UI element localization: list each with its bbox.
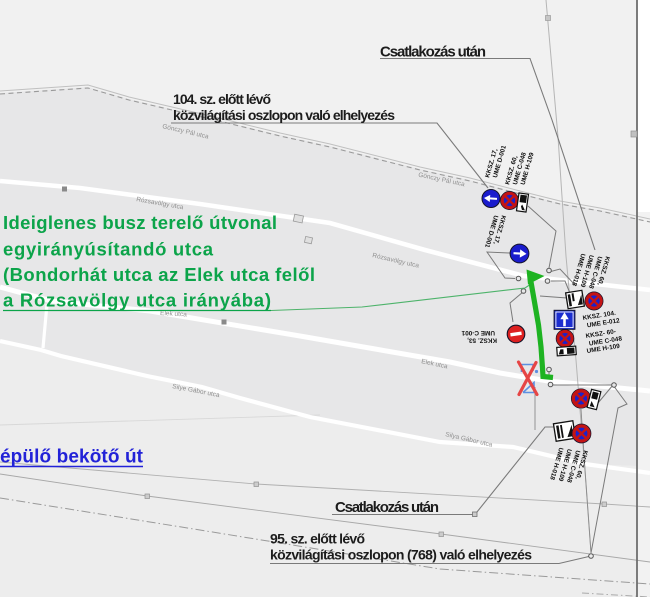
svg-text:épülő bekötő út: épülő bekötő út bbox=[0, 447, 144, 468]
svg-text:KKSZ. 53,: KKSZ. 53, bbox=[467, 337, 497, 344]
svg-text:Csatlakozás után: Csatlakozás után bbox=[380, 44, 486, 61]
svg-text:közvilágítási oszlopon való el: közvilágítási oszlopon való elhelyezés bbox=[173, 107, 395, 123]
svg-text:104. sz. előtt lévő: 104. sz. előtt lévő bbox=[173, 91, 271, 107]
svg-text:Csatlakozás után: Csatlakozás után bbox=[335, 499, 439, 516]
svg-text:a Rózsavölgy utca irányába): a Rózsavölgy utca irányába) bbox=[3, 290, 271, 311]
svg-text:95. sz. előtt lévő: 95. sz. előtt lévő bbox=[270, 531, 365, 547]
svg-text:Ideiglenes busz terelő útvonal: Ideiglenes busz terelő útvonal bbox=[3, 212, 277, 233]
svg-text:UME C-001: UME C-001 bbox=[461, 329, 495, 336]
svg-text:(Bondorhát utca az Elek utca f: (Bondorhát utca az Elek utca felől bbox=[3, 264, 315, 285]
svg-text:közvilágítási oszlopon (768) v: közvilágítási oszlopon (768) való elhely… bbox=[270, 547, 532, 563]
svg-text:Elek utca: Elek utca bbox=[160, 310, 187, 318]
svg-text:egyirányúsítandó utca: egyirányúsítandó utca bbox=[3, 239, 214, 260]
